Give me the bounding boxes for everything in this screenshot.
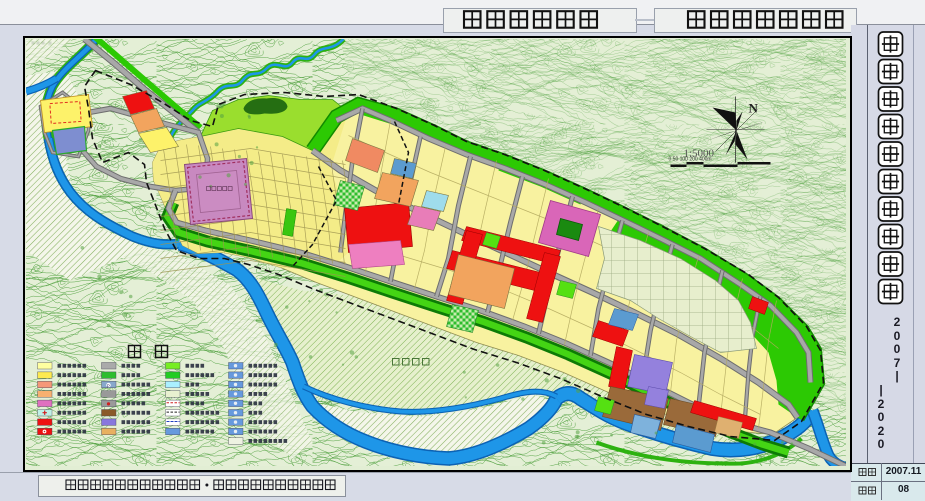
svg-text:P: P [106, 383, 109, 388]
svg-text:0 50 100 200 400: 0 50 100 200 400m [668, 156, 711, 162]
svg-text:N: N [748, 100, 758, 115]
